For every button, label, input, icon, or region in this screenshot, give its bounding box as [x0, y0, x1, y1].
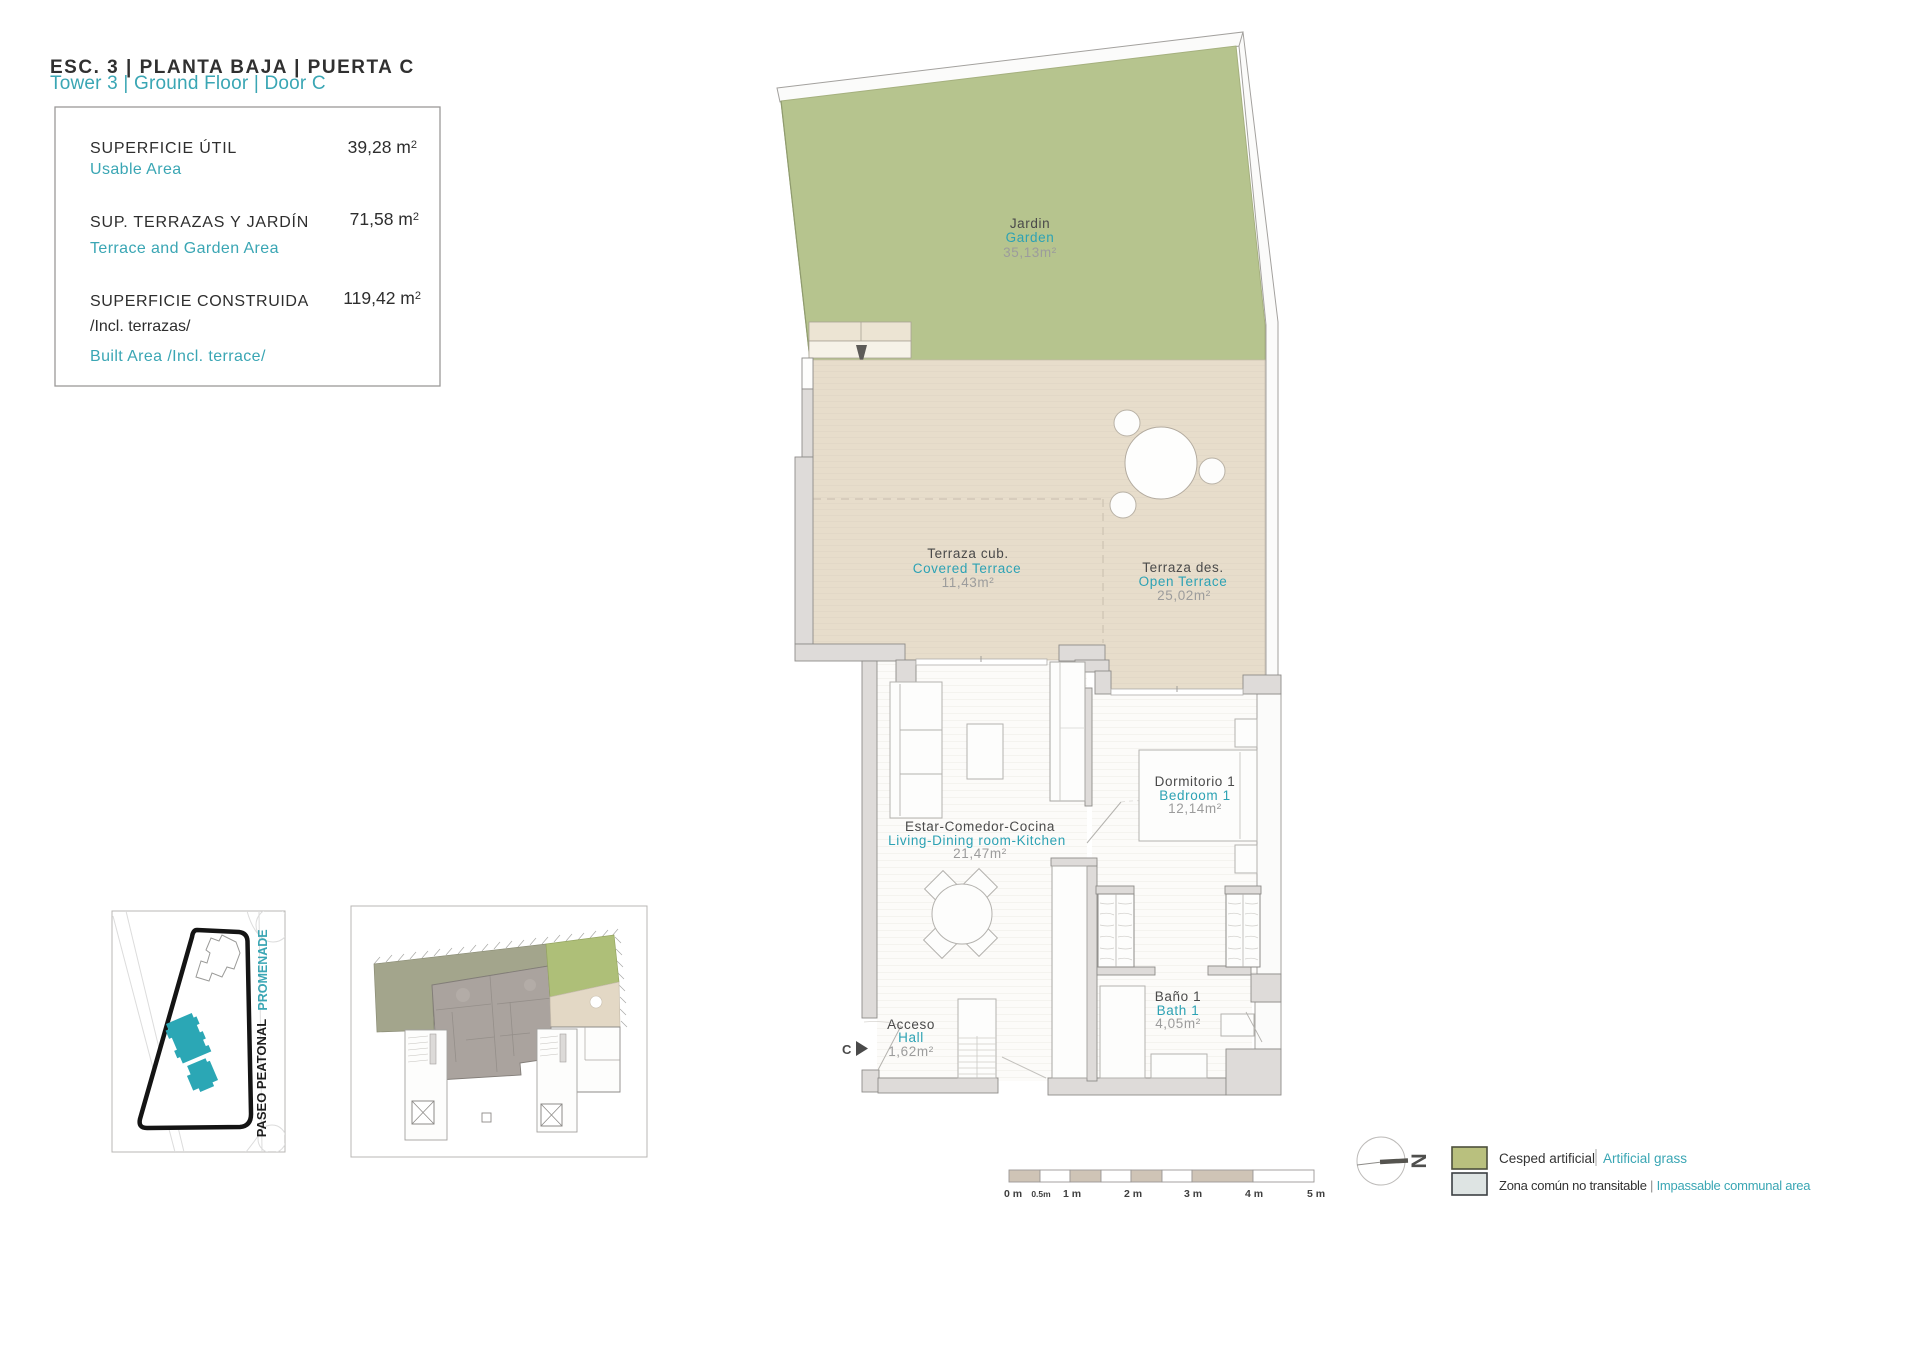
svg-text:SUPERFICIE CONSTRUIDA: SUPERFICIE CONSTRUIDA	[90, 293, 309, 310]
svg-text:Usable Area: Usable Area	[90, 161, 182, 178]
svg-text:11,43m²: 11,43m²	[942, 575, 995, 590]
svg-text:Tower 3 | Ground Floor | Door: Tower 3 | Ground Floor | Door C	[50, 73, 326, 94]
svg-text:SUP. TERRAZAS Y JARDÍN: SUP. TERRAZAS Y JARDÍN	[90, 212, 309, 231]
svg-text:4,05m²: 4,05m²	[1155, 1016, 1201, 1031]
svg-text:PROMENADE: PROMENADE	[256, 929, 270, 1010]
svg-text:N: N	[1406, 1153, 1429, 1168]
svg-text:Zona común no transitable | Im: Zona común no transitable | Impassable c…	[1499, 1178, 1811, 1193]
svg-text:Hall: Hall	[898, 1030, 924, 1045]
svg-text:Covered Terrace: Covered Terrace	[913, 561, 1022, 576]
svg-text:35,13m²: 35,13m²	[1003, 245, 1057, 260]
svg-text:Built Area /Incl. terrace/: Built Area /Incl. terrace/	[90, 348, 266, 365]
svg-text:5 m: 5 m	[1307, 1188, 1325, 1200]
svg-text:71,58 m2: 71,58 m2	[350, 209, 419, 229]
svg-text:3 m: 3 m	[1184, 1188, 1202, 1200]
svg-text:1,62m²: 1,62m²	[888, 1044, 934, 1059]
svg-text:2 m: 2 m	[1124, 1188, 1142, 1200]
svg-text:PASEO PEATONAL: PASEO PEATONAL	[254, 1019, 269, 1138]
svg-text:Dormitorio 1: Dormitorio 1	[1155, 774, 1236, 789]
svg-text:39,28 m2: 39,28 m2	[348, 137, 417, 157]
svg-text:119,42 m2: 119,42 m2	[343, 288, 421, 308]
svg-text:Garden: Garden	[1006, 230, 1055, 245]
svg-text:SUPERFICIE ÚTIL: SUPERFICIE ÚTIL	[90, 138, 237, 157]
svg-text:1 m: 1 m	[1063, 1188, 1081, 1200]
svg-text:21,47m²: 21,47m²	[953, 846, 1007, 861]
svg-text:Terraza des.: Terraza des.	[1142, 560, 1223, 575]
svg-text:Baño 1: Baño 1	[1155, 989, 1201, 1004]
svg-text:Jardin: Jardin	[1010, 216, 1050, 231]
svg-text:0 m: 0 m	[1004, 1188, 1022, 1200]
svg-text:Artificial grass: Artificial grass	[1603, 1151, 1687, 1166]
svg-text:4 m: 4 m	[1245, 1188, 1263, 1200]
svg-text:Open Terrace: Open Terrace	[1139, 574, 1228, 589]
svg-text:Terraza cub.: Terraza cub.	[927, 546, 1008, 561]
svg-text:/Incl. terrazas/: /Incl. terrazas/	[90, 318, 191, 335]
svg-text:12,14m²: 12,14m²	[1168, 801, 1222, 816]
svg-text:Cesped artificial: Cesped artificial	[1499, 1151, 1595, 1166]
svg-text:Terrace and Garden Area: Terrace and Garden Area	[90, 240, 279, 257]
svg-text:0.5m: 0.5m	[1031, 1189, 1051, 1199]
svg-text:C: C	[842, 1042, 852, 1057]
svg-text:25,02m²: 25,02m²	[1157, 588, 1211, 603]
svg-text:Estar-Comedor-Cocina: Estar-Comedor-Cocina	[905, 819, 1055, 834]
